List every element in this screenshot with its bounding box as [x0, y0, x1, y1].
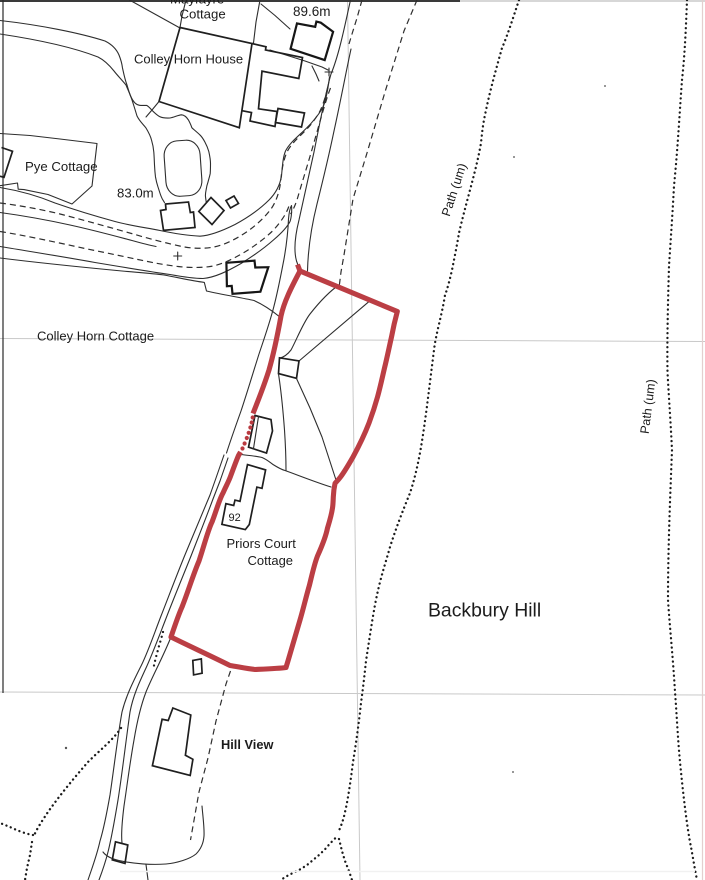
svg-text:Hill View: Hill View [221, 737, 273, 752]
svg-text:Backbury Hill: Backbury Hill [428, 600, 541, 622]
svg-text:Priors Court: Priors Court [227, 536, 297, 551]
svg-text:92: 92 [229, 512, 241, 524]
svg-text:Cottage: Cottage [180, 7, 226, 22]
svg-text:83.0m: 83.0m [117, 186, 154, 201]
svg-text:Mayfayre: Mayfayre [170, 0, 224, 7]
svg-text:Pye Cottage: Pye Cottage [25, 159, 98, 174]
svg-text:Colley Horn Cottage: Colley Horn Cottage [37, 329, 154, 344]
svg-text:Cottage: Cottage [248, 553, 294, 568]
svg-text:89.6m: 89.6m [293, 4, 331, 19]
svg-text:Colley Horn House: Colley Horn House [134, 52, 243, 67]
